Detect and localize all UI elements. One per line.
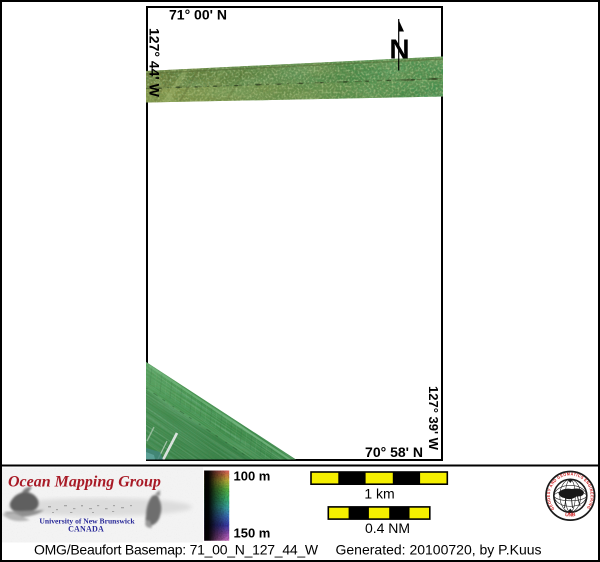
svg-text:Generated: 20100720, by P.Kuus: Generated: 20100720, by P.Kuus [336, 542, 542, 558]
svg-text:1 km: 1 km [364, 486, 394, 502]
svg-text:70° 58' N: 70° 58' N [365, 444, 423, 460]
svg-text:150 m: 150 m [234, 526, 271, 541]
svg-text:0.4 NM: 0.4 NM [365, 520, 410, 536]
svg-text:71° 00' N: 71° 00' N [169, 6, 227, 22]
svg-text:UNB: UNB [565, 512, 577, 519]
svg-text:Ocean Mapping Group: Ocean Mapping Group [8, 474, 161, 491]
svg-text:127° 39' W: 127° 39' W [426, 386, 441, 451]
svg-text:127° 44' W: 127° 44' W [147, 28, 163, 98]
svg-text:OMG/Beaufort Basemap: 71_00_N_: OMG/Beaufort Basemap: 71_00_N_127_44_W [34, 542, 319, 558]
svg-text:N: N [389, 34, 409, 65]
svg-text:100 m: 100 m [234, 469, 271, 484]
svg-text:CANADA: CANADA [68, 525, 104, 534]
